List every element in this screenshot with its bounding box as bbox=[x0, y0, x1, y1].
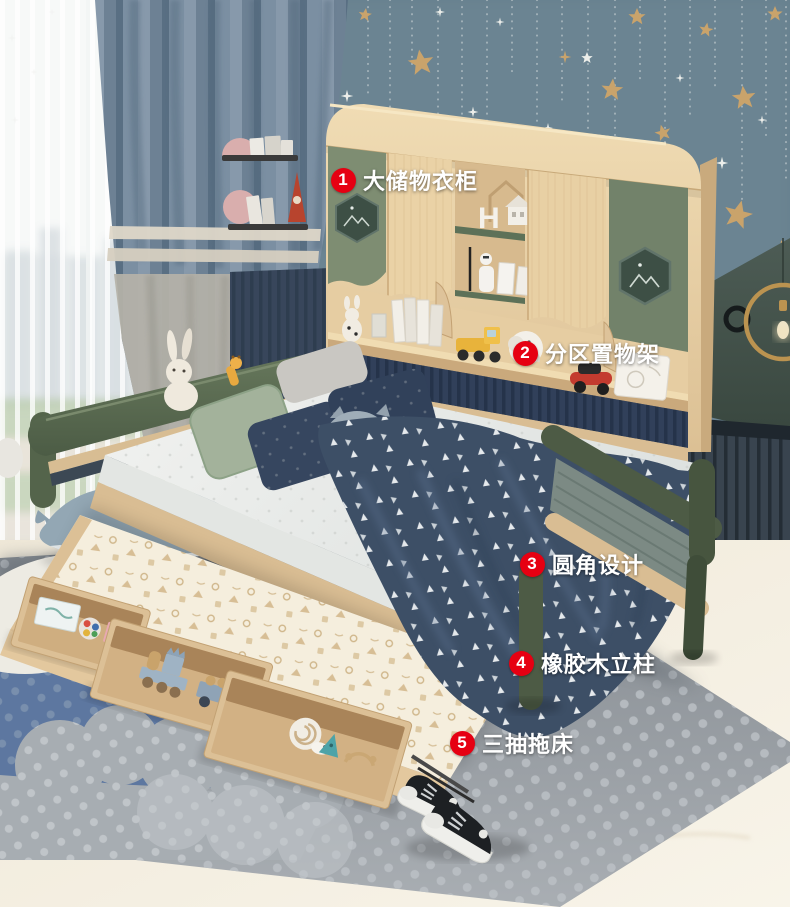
wardrobe-door-wood-right bbox=[528, 170, 606, 328]
callout-label: 三抽拖床 bbox=[482, 727, 574, 759]
product-photo-kids-bed: H bbox=[0, 0, 790, 907]
callout-number-badge: 4 bbox=[509, 651, 534, 676]
scene-illustration: H bbox=[0, 0, 790, 907]
callout-number-badge: 3 bbox=[520, 552, 545, 577]
callout-label: 分区置物架 bbox=[545, 337, 660, 369]
hexagon-badge-right bbox=[620, 248, 670, 304]
callout-label: 大储物衣柜 bbox=[363, 164, 478, 196]
callout-rounded-corner: 3 圆角设计 bbox=[520, 548, 644, 580]
callout-number-badge: 5 bbox=[450, 731, 475, 756]
callout-number-badge: 2 bbox=[513, 341, 538, 366]
callout-trundle-drawers: 5 三抽拖床 bbox=[450, 727, 574, 759]
callout-shelf: 2 分区置物架 bbox=[513, 337, 660, 369]
callout-label: 圆角设计 bbox=[552, 548, 644, 580]
callout-rubberwood-post: 4 橡胶木立柱 bbox=[509, 647, 656, 679]
callout-wardrobe: 1 大储物衣柜 bbox=[331, 164, 478, 196]
callout-number-badge: 1 bbox=[331, 168, 356, 193]
callout-label: 橡胶木立柱 bbox=[541, 647, 656, 679]
